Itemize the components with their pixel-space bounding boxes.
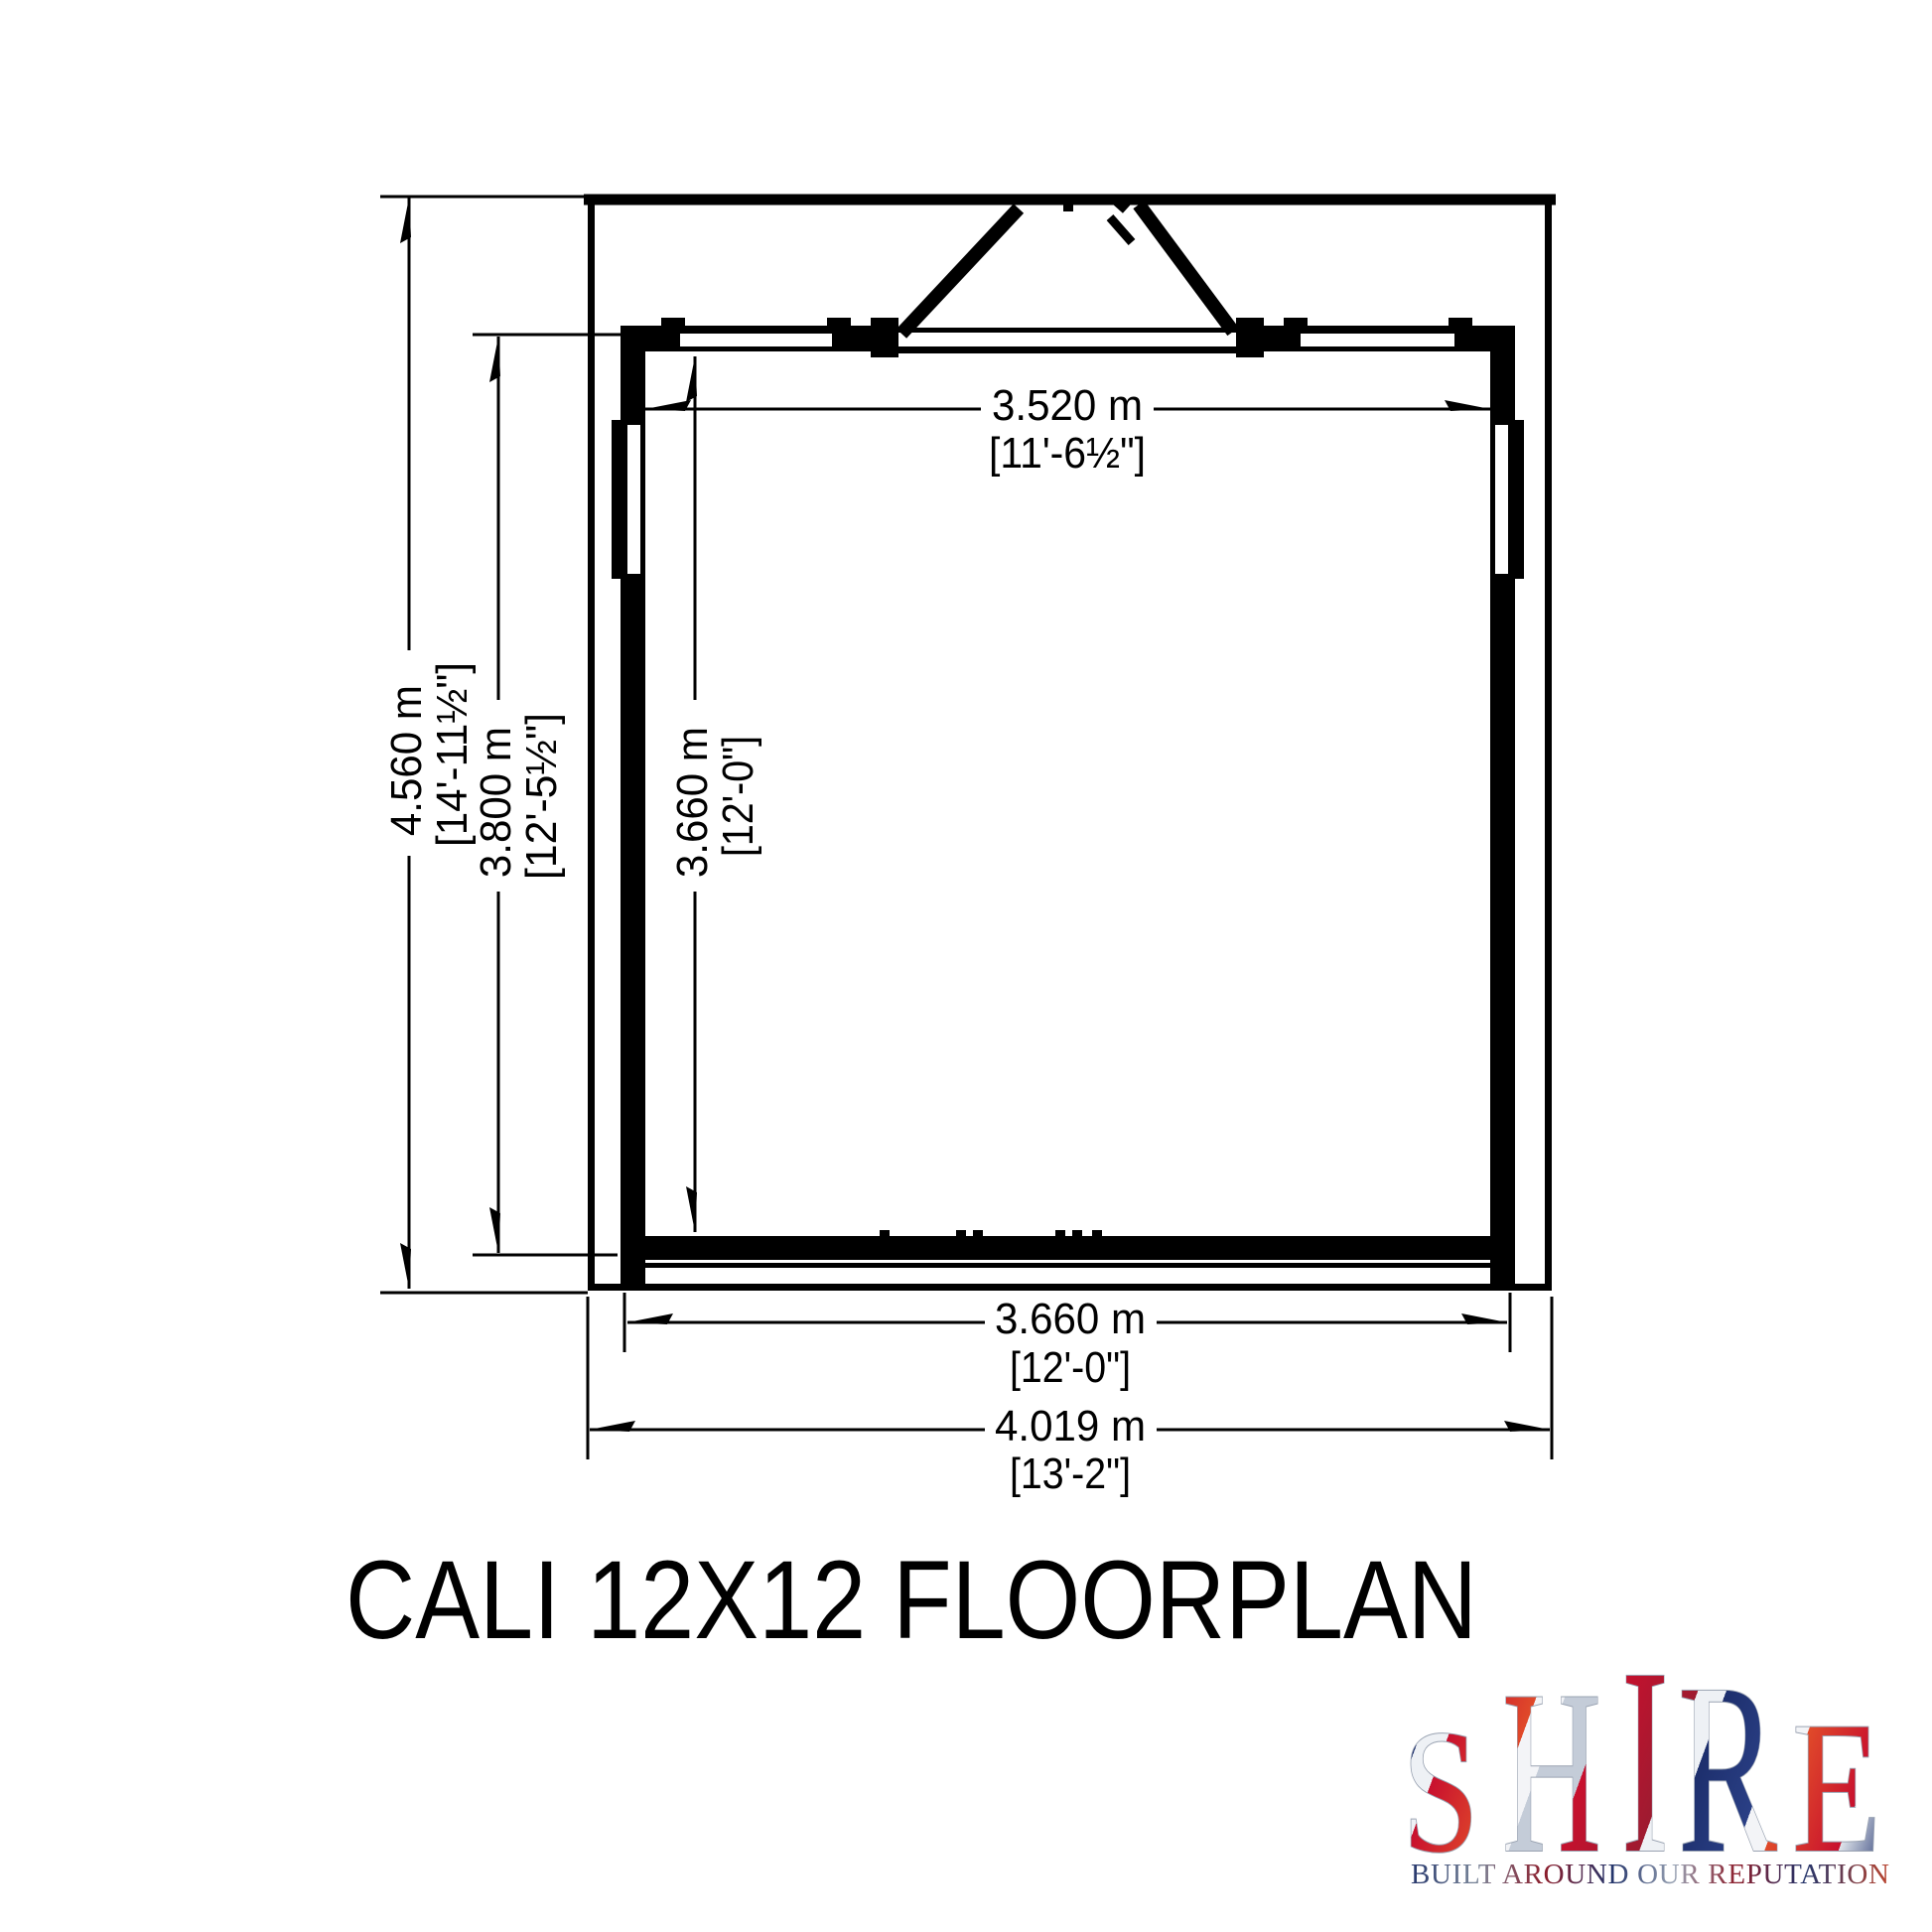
dim-label-overall-depth-ft: [14'-11½"] <box>428 662 477 847</box>
wall-bottom-tick <box>880 1230 890 1236</box>
window-glazing-top-right <box>1301 334 1454 346</box>
door-sill-outer-line <box>897 328 1238 333</box>
logo-tagline: BUILT AROUND OUR REPUTATION <box>1411 1859 1889 1890</box>
window-frame-cap <box>1449 318 1472 328</box>
dim-label-overall-depth: 4.560 m [14'-11½"] <box>382 662 477 847</box>
door-handle-bar <box>1110 217 1132 242</box>
dim-label-interior-width-m: 3.520 m <box>992 381 1143 430</box>
window-frame-cap <box>661 318 685 328</box>
dim-label-overall-depth-m: 4.560 m <box>382 685 431 836</box>
dim-label-building-width-ft: [12'-0"] <box>1010 1343 1131 1392</box>
door-hinge-block-left <box>871 318 898 357</box>
dim-label-building-depth-m: 3.800 m <box>472 727 520 878</box>
window-frame-left <box>612 420 621 579</box>
window-glazing-top-left <box>680 334 832 346</box>
dimension-labels: 3.520 m [11'-6½"] 3.660 m [12'-0"] 4.019… <box>382 381 1146 1498</box>
door-sill-inner-line <box>897 346 1238 353</box>
wall-bottom-face-line <box>621 1263 1515 1268</box>
dim-label-interior-width-ft: [11'-6½"] <box>989 429 1146 478</box>
door-leaf-left <box>901 208 1019 334</box>
door-hinge-block-right <box>1236 318 1264 357</box>
page-title: CALI 12X12 FLOORPLAN <box>345 1538 1477 1662</box>
floorplan-drawing: 3.520 m [11'-6½"] 3.660 m [12'-0"] 4.019… <box>0 0 1932 1932</box>
dim-label-overall-width-ft: [13'-2"] <box>1010 1449 1131 1498</box>
page: { "page": { "background": "#ffffff", "in… <box>0 0 1932 1932</box>
canopy-center-mark <box>1063 200 1073 211</box>
window-frame-cap <box>1284 318 1308 328</box>
dim-label-overall-width-m: 4.019 m <box>995 1402 1146 1450</box>
dim-label-interior-depth: 3.660 m [12'-0"] <box>668 715 762 878</box>
wall-bottom-tick <box>1092 1230 1102 1236</box>
wall-bottom-tick <box>1055 1230 1065 1236</box>
wall-bottom-tick <box>956 1230 966 1236</box>
dim-label-building-width-m: 3.660 m <box>995 1295 1146 1343</box>
window-frame-cap <box>827 318 851 328</box>
window-frame-right <box>1515 420 1524 579</box>
window-glazing-right <box>1495 425 1508 574</box>
wall-bottom-tick <box>1072 1230 1082 1236</box>
wall-bottom <box>621 1236 1515 1260</box>
dim-label-interior-depth-m: 3.660 m <box>668 727 717 878</box>
double-doors <box>897 195 1238 353</box>
dim-label-interior-depth-ft: [12'-0"] <box>714 736 762 857</box>
wall-bottom-tick <box>973 1230 983 1236</box>
dim-label-building-depth: 3.800 m [12'-5½"] <box>472 713 566 880</box>
window-glazing-left <box>627 425 640 574</box>
dim-label-building-depth-ft: [12'-5½"] <box>517 713 566 880</box>
